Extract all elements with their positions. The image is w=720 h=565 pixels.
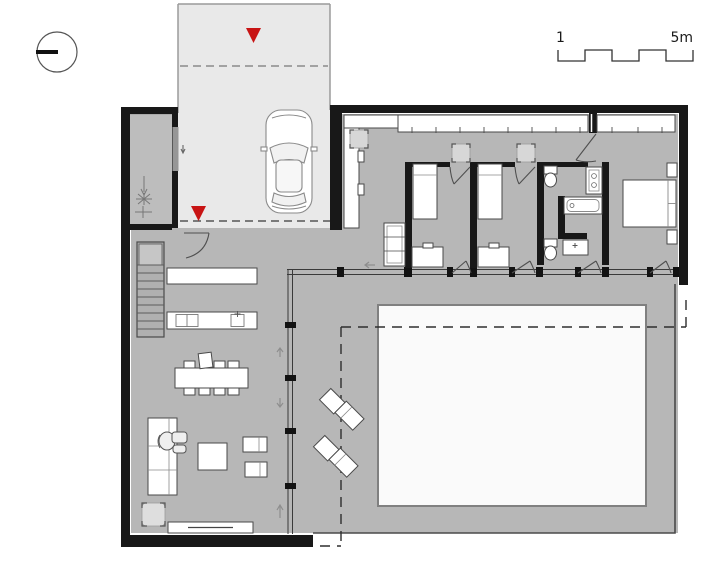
nightstand [667,230,677,244]
mat [350,130,368,148]
entry-court-floor [129,114,173,226]
mat [452,144,470,162]
car-roof [276,160,302,192]
pouf [142,503,165,526]
toilet [544,239,557,260]
sink [563,240,588,255]
stair-landing [139,244,162,265]
wall-partition-1 [405,162,412,268]
dresser-knob [423,243,433,248]
wall-court-bottom [128,224,172,230]
wall-bathroom-inner-h [558,233,587,239]
dresser [478,247,509,267]
wall-closet-divider [589,113,597,133]
wardrobe-handle [358,151,364,162]
entry-court [129,114,173,226]
toilet [544,166,557,187]
wall-court-top [121,107,178,114]
wall-bathroom-west [537,162,544,265]
scale-bar: 1 5m [556,30,693,61]
closet-section-c [597,115,675,132]
mat [517,144,535,162]
pool-court [378,305,646,506]
scale-bar-shape [558,50,693,61]
bed [478,164,502,219]
bathtub [564,197,602,214]
kitchen-counter [167,268,257,284]
wall-bathroom-east [602,162,609,265]
nightstand [667,163,677,177]
mirror-right [311,147,317,151]
north-symbol-icon [36,32,77,72]
wall-west [121,107,130,547]
closet-section-a [344,115,398,128]
vanity [586,167,602,194]
kitchen-island [167,311,257,329]
closet-section-b [398,115,588,132]
wall-south [121,535,313,547]
wall-gap-right [678,286,689,298]
door-court-garage-leaf [173,127,179,171]
sofa [148,418,177,495]
wardrobe-handle [358,184,364,195]
tv-bench [168,522,253,533]
dresser [412,247,443,267]
staircase [137,242,164,337]
wall-partition-2 [470,162,477,268]
wall-north [330,105,688,113]
wall-garage-east [330,105,342,230]
shelf-unit [384,223,405,266]
wall-east [679,105,688,285]
floor-plan-canvas: 1 5m [0,0,720,565]
floor-plan-drawing: 1 5m [0,0,720,565]
mirror-left [261,147,267,151]
scale-start-label: 1 [556,30,565,46]
coffee-table [198,443,227,470]
car [261,110,317,213]
scale-end-label: 5m [670,30,693,46]
bed [413,164,437,219]
dining-table [175,368,248,388]
dresser-knob [489,243,499,248]
